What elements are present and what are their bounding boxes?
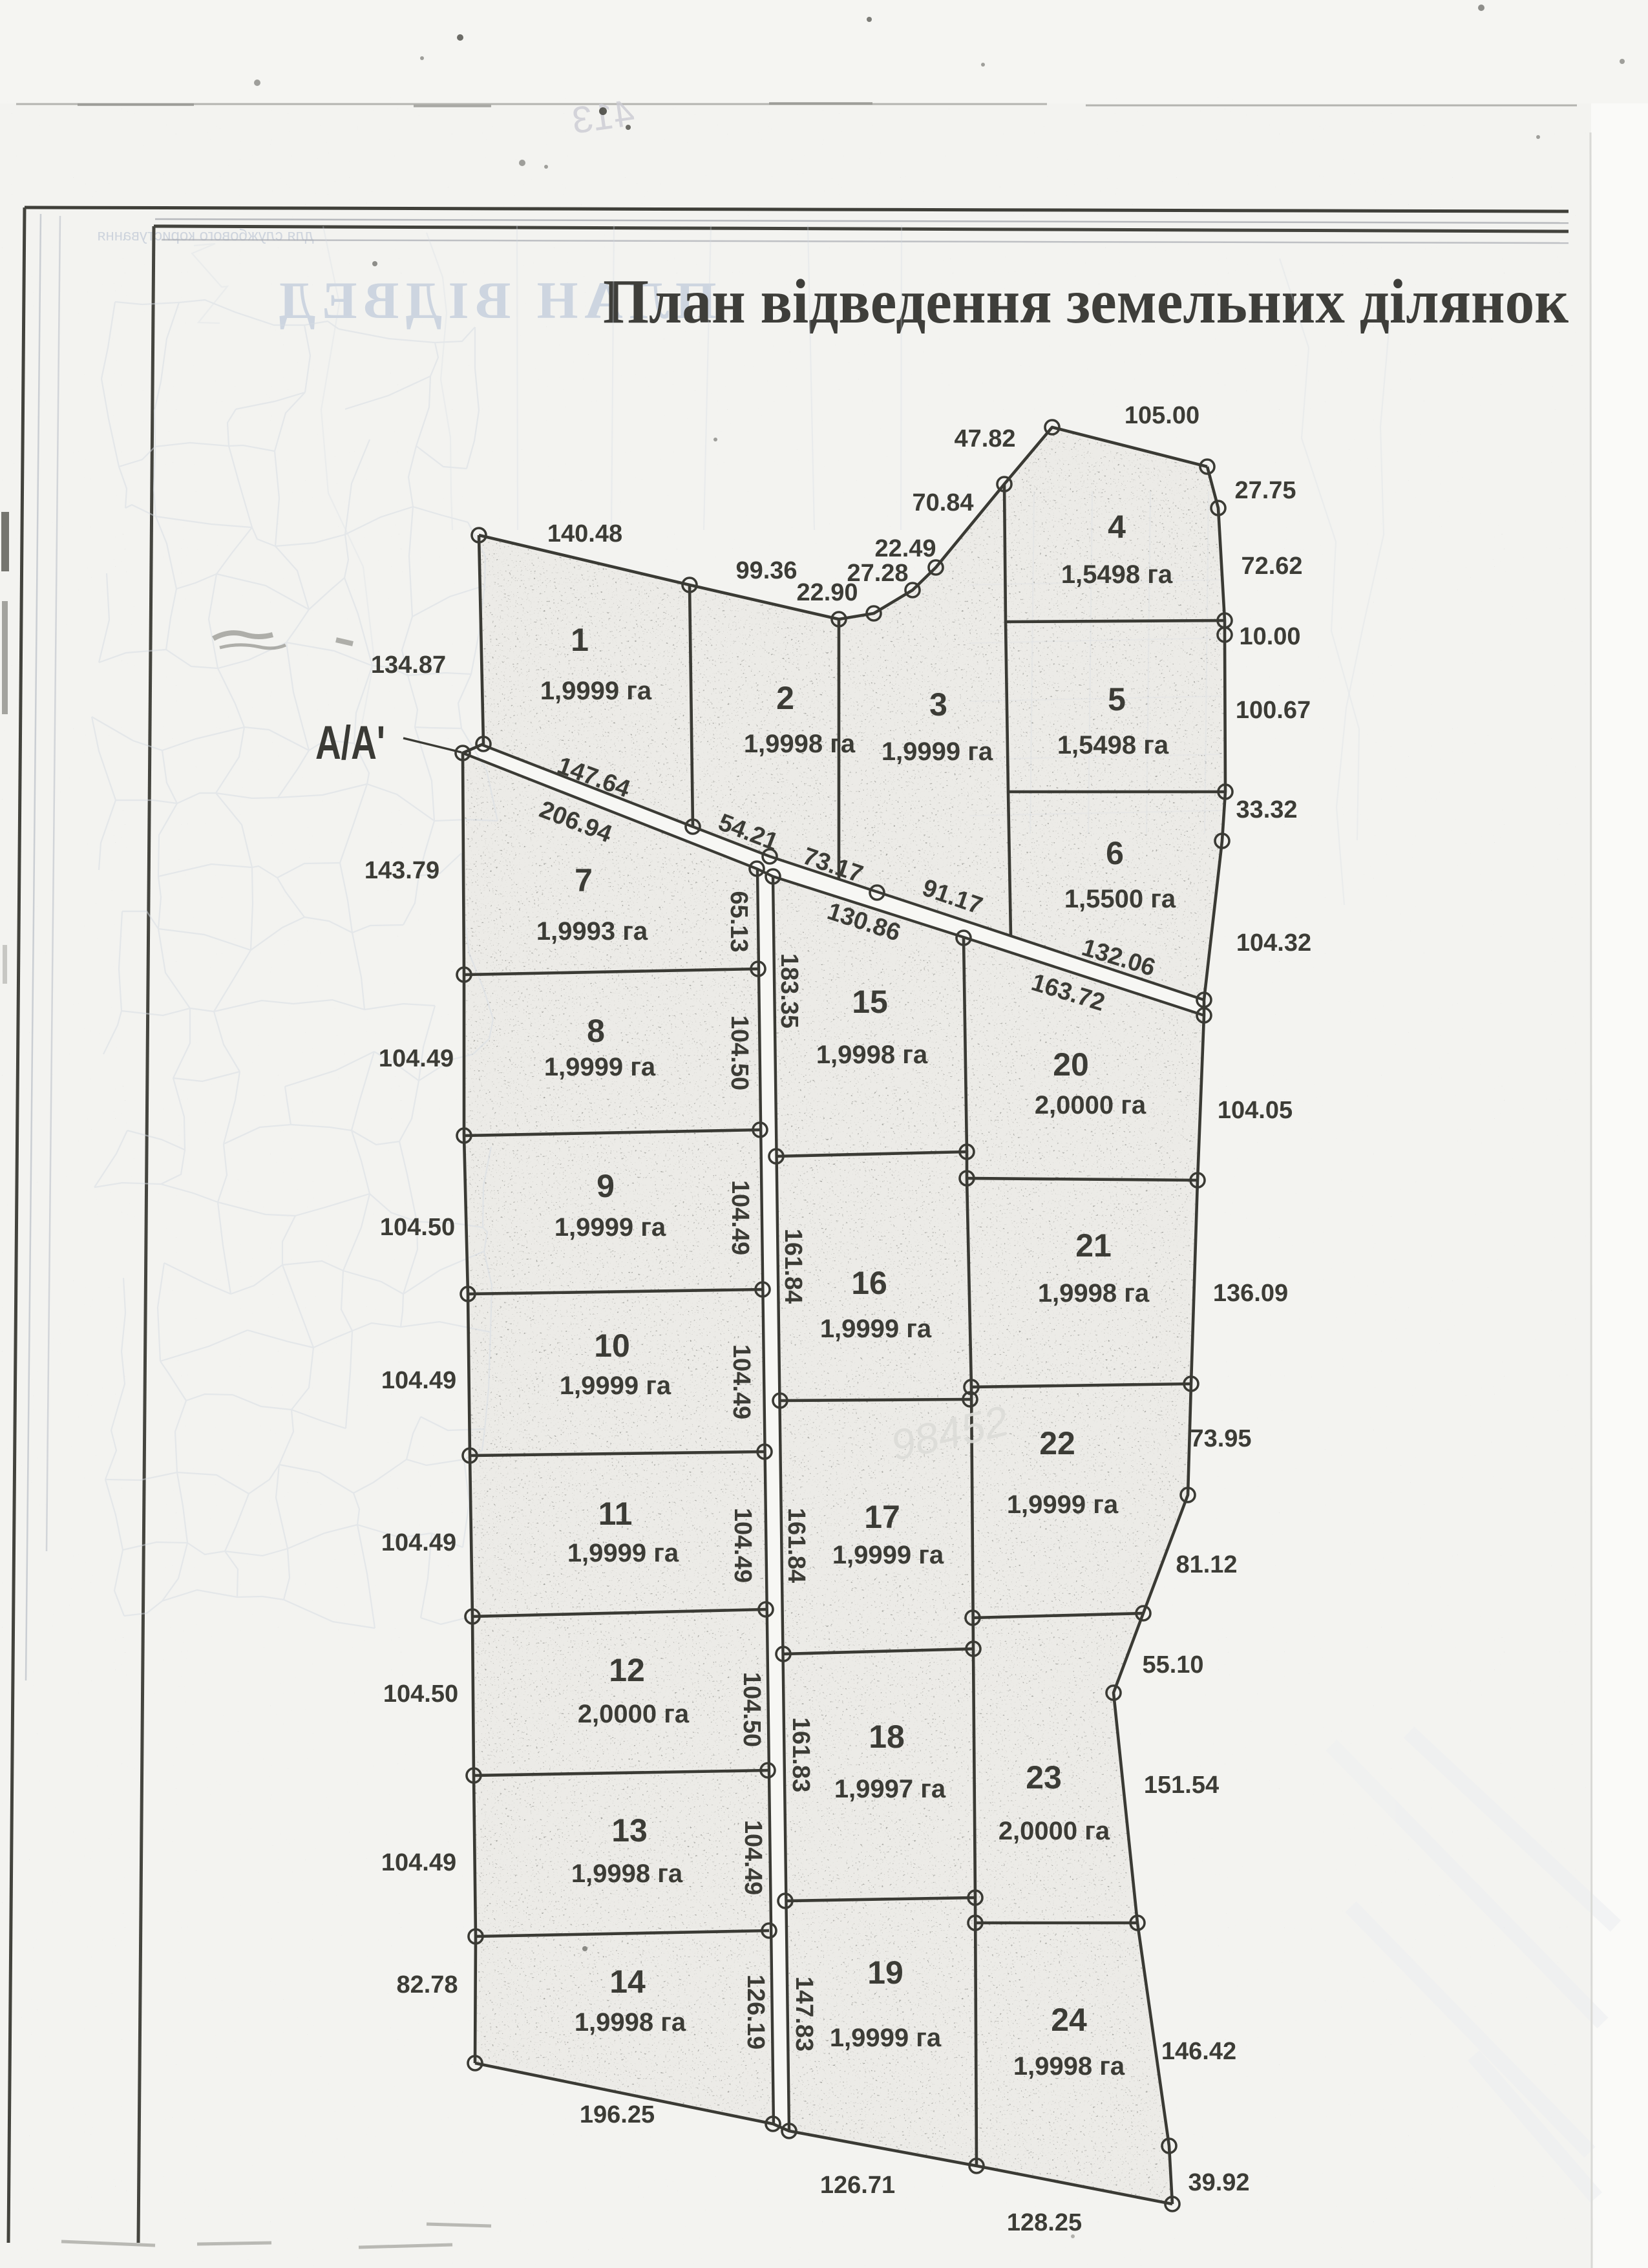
svg-text:136.09: 136.09 (1213, 1280, 1288, 1307)
svg-text:План відведення земельних діля: План відведення земельних ділянок (603, 267, 1569, 336)
svg-text:8: 8 (587, 1013, 605, 1049)
svg-text:10: 10 (594, 1328, 630, 1364)
svg-text:16: 16 (851, 1265, 887, 1301)
svg-text:104.32: 104.32 (1236, 929, 1311, 957)
svg-text:21: 21 (1075, 1227, 1112, 1264)
svg-text:39.92: 39.92 (1188, 2169, 1249, 2196)
svg-text:18: 18 (869, 1719, 905, 1755)
svg-text:105.00: 105.00 (1125, 402, 1199, 429)
svg-text:55.10: 55.10 (1142, 1651, 1203, 1679)
svg-text:128.25: 128.25 (1007, 2209, 1082, 2236)
svg-text:146.42: 146.42 (1161, 2038, 1236, 2065)
svg-text:1,9998 га: 1,9998 га (816, 1041, 928, 1069)
svg-text:1,9999 га: 1,9999 га (567, 1539, 679, 1567)
svg-text:17: 17 (864, 1499, 900, 1535)
svg-text:1,9998 га: 1,9998 га (571, 1860, 683, 1888)
svg-text:104.49: 104.49 (728, 1344, 755, 1419)
svg-text:104.49: 104.49 (381, 1849, 456, 1876)
svg-text:183.35: 183.35 (776, 953, 803, 1028)
svg-text:для службового користування: для службового користування (98, 227, 314, 244)
svg-text:2,0000 га: 2,0000 га (1035, 1091, 1146, 1119)
svg-text:126.71: 126.71 (820, 2172, 895, 2199)
svg-text:22.49: 22.49 (874, 535, 936, 562)
svg-text:104.05: 104.05 (1218, 1097, 1293, 1124)
svg-text:47.82: 47.82 (954, 425, 1015, 452)
svg-text:413: 413 (569, 92, 637, 142)
svg-text:1,9999 га: 1,9999 га (544, 1053, 656, 1081)
svg-text:104.50: 104.50 (738, 1672, 765, 1747)
svg-text:1,9999 га: 1,9999 га (832, 1541, 944, 1569)
svg-text:6: 6 (1106, 835, 1124, 871)
svg-text:147.83: 147.83 (790, 1977, 818, 2051)
svg-text:82.78: 82.78 (396, 1971, 458, 1998)
svg-text:140.48: 140.48 (547, 520, 622, 547)
svg-text:104.50: 104.50 (383, 1680, 458, 1708)
svg-text:23: 23 (1026, 1759, 1062, 1796)
svg-text:2,0000 га: 2,0000 га (578, 1700, 690, 1728)
svg-text:1,5500 га: 1,5500 га (1064, 885, 1176, 913)
svg-text:13: 13 (611, 1812, 648, 1849)
svg-text:19: 19 (867, 1955, 903, 1991)
svg-text:27.75: 27.75 (1234, 477, 1296, 504)
svg-text:151.54: 151.54 (1144, 1772, 1219, 1799)
svg-text:100.67: 100.67 (1236, 697, 1311, 724)
svg-text:4: 4 (1108, 509, 1126, 545)
svg-text:161.84: 161.84 (783, 1508, 810, 1583)
svg-text:10.00: 10.00 (1239, 623, 1300, 650)
svg-text:1,9998 га: 1,9998 га (744, 730, 856, 758)
svg-text:9: 9 (597, 1168, 615, 1204)
svg-text:7: 7 (575, 862, 593, 898)
svg-text:1,5498 га: 1,5498 га (1057, 731, 1169, 759)
svg-text:1,9999 га: 1,9999 га (555, 1213, 666, 1242)
svg-text:104.49: 104.49 (381, 1529, 456, 1556)
svg-text:1,9999 га: 1,9999 га (540, 677, 652, 705)
svg-text:12: 12 (609, 1652, 645, 1688)
svg-text:72.62: 72.62 (1241, 553, 1302, 580)
svg-text:1,9993 га: 1,9993 га (536, 917, 648, 946)
svg-text:65.13: 65.13 (725, 891, 752, 952)
svg-text:24: 24 (1051, 2002, 1087, 2038)
svg-text:5: 5 (1108, 681, 1126, 717)
svg-text:196.25: 196.25 (580, 2101, 655, 2128)
svg-text:1,9999 га: 1,9999 га (830, 2024, 942, 2052)
svg-text:1,5498 га: 1,5498 га (1061, 560, 1173, 589)
svg-text:1,9999 га: 1,9999 га (882, 737, 993, 766)
svg-text:15: 15 (852, 984, 888, 1020)
svg-text:99.36: 99.36 (735, 557, 797, 584)
svg-text:1,9999 га: 1,9999 га (1007, 1490, 1119, 1519)
svg-text:104.50: 104.50 (380, 1214, 455, 1241)
svg-text:1,9998 га: 1,9998 га (1038, 1279, 1150, 1308)
svg-text:1,9999 га: 1,9999 га (560, 1372, 671, 1400)
svg-text:104.50: 104.50 (726, 1015, 753, 1090)
svg-text:22: 22 (1039, 1425, 1075, 1461)
svg-text:161.83: 161.83 (787, 1717, 814, 1792)
svg-text:1: 1 (571, 622, 589, 658)
svg-text:20: 20 (1053, 1046, 1089, 1083)
svg-text:3: 3 (929, 686, 947, 723)
svg-text:104.49: 104.49 (739, 1820, 766, 1895)
svg-text:27.28: 27.28 (847, 560, 908, 587)
svg-text:161.84: 161.84 (779, 1229, 807, 1304)
svg-text:2: 2 (776, 680, 794, 716)
svg-text:134.87: 134.87 (371, 652, 446, 679)
svg-text:2,0000 га: 2,0000 га (998, 1817, 1110, 1845)
svg-text:104.49: 104.49 (729, 1508, 756, 1583)
svg-text:1,9997 га: 1,9997 га (834, 1775, 946, 1803)
svg-text:14: 14 (609, 1964, 646, 2000)
svg-text:81.12: 81.12 (1176, 1551, 1237, 1578)
svg-text:70.84: 70.84 (912, 489, 973, 516)
svg-text:1,9998 га: 1,9998 га (1013, 2052, 1125, 2081)
svg-text:11: 11 (598, 1496, 633, 1532)
svg-text:104.49: 104.49 (379, 1045, 454, 1072)
svg-text:А/А': А/А' (315, 717, 385, 769)
svg-text:73.95: 73.95 (1190, 1425, 1251, 1452)
svg-text:143.79: 143.79 (364, 857, 439, 884)
svg-text:104.49: 104.49 (726, 1180, 754, 1255)
svg-text:104.49: 104.49 (381, 1367, 456, 1394)
svg-text:1,9998 га: 1,9998 га (575, 2008, 686, 2037)
svg-text:33.32: 33.32 (1236, 796, 1297, 823)
svg-text:1,9999 га: 1,9999 га (820, 1315, 932, 1343)
svg-text:126.19: 126.19 (742, 1975, 769, 2050)
